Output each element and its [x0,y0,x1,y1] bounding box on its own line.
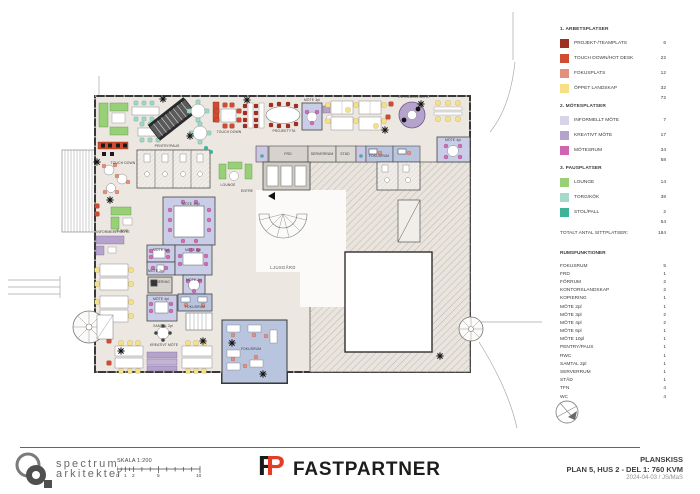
scale-label: SKALA 1:200 [117,458,205,464]
legend-item: STOL/PALL2 [560,205,666,220]
legend-item-label: KREATIVT MÖTE [574,133,654,138]
legend-item-count: 38 [654,195,666,200]
room-function-row: MÖTE 10pl1 [560,336,666,344]
legend-item-count: 17 [654,133,666,138]
plan-room-label: SERVERRUM [311,152,334,156]
scale-num-2: 2 [132,474,135,479]
legend-total-value: 184 [654,231,666,236]
room-function-count: 2 [656,280,666,285]
room-functions: RUMSFUNKTIONER FOKUSRUM5FRD1FÖRRUM2KONTO… [560,251,666,401]
room-function-count: 1 [656,337,666,342]
room-function-label: RWC [560,354,656,359]
legend-panel: 1. ARBETSPLATSERPROJEKT-/TEAMPLATS6TOUCH… [560,27,666,401]
legend-item-label: TORG/KÖK [574,195,654,200]
legend-item-label: INFORMELLT MÖTE [574,118,654,123]
elevator-block [263,162,310,190]
doc-type: PLANSKISS [566,455,683,465]
legend-item-count: 22 [654,56,666,61]
legend-section-title: 2. MÖTESPLATSER [560,104,666,113]
legend-swatch [560,84,569,93]
wc-core-left [137,150,210,188]
legend-sections: 1. ARBETSPLATSERPROJEKT-/TEAMPLATS6TOUCH… [560,27,666,228]
room-function-label: FRD [560,272,656,277]
legend-item-label: LOUNGE [574,180,654,185]
legend-item-count: 32 [654,86,666,91]
drawing-sheet: PENTRY/PAUSTOUCH DOWNTOUCH DOWNLOUNGELOU… [0,0,700,494]
fastpartner-logo-p: P [266,450,285,481]
legend-subtotal: 72 [560,96,666,104]
legend-section-title: 1. ARBETSPLATSER [560,27,666,36]
plan-room-label: MÖTE 6pl [185,248,201,252]
legend-item-count: 6 [654,41,666,46]
legend-item-label: PROJEKT-/TEAMPLATS [574,41,654,46]
legend-swatch [560,208,569,217]
wc-core-right [377,162,420,190]
room-function-count: 1 [656,370,666,375]
plan-room-label: MÖTE 4pl [445,138,461,142]
legend-item-count: 2 [654,210,666,215]
plan-room-label: LOUNGE [221,183,237,187]
interior-stair [186,313,212,330]
plan-room-label: PENTRY/PAUS [155,144,180,148]
legend-section-title: 3. PAUSPLATSER [560,166,666,175]
architect-brand: spectrum arkitekter [14,450,123,490]
north-symbol [556,401,578,423]
legend-item: PROJEKT-/TEAMPLATS6 [560,36,666,51]
room-function-count: 4 [656,395,666,400]
legend-item: KREATIVT MÖTE17 [560,128,666,143]
plan-room-label: TOUCH DOWN [217,130,242,134]
plan-room-label: ENTRE [241,189,254,193]
client-name: FASTPARTNER [293,459,441,481]
spiral-stair-left [73,311,113,343]
legend-swatch [560,146,569,155]
room-function-count: 1 [656,272,666,277]
room-function-count: 1 [656,378,666,383]
plan-room-label: TOUCH DOWN [111,161,136,165]
legend-swatch [560,54,569,63]
exterior-stair [62,150,95,232]
plan-room-label: INFORMELL MÖTE [398,95,430,99]
room-function-label: STÄD [560,378,656,383]
room-function-count: 2 [656,321,666,326]
room-function-row: WC4 [560,393,666,401]
plan-room-label: KOPIERING [150,280,170,284]
room-function-count: 1 [656,345,666,350]
room-function-row: MÖTE 3pl2 [560,311,666,319]
room-functions-rows: FOKUSRUM5FRD1FÖRRUM2KONTORSLANDSKAP2KOPI… [560,262,666,401]
legend-item: LOUNGE14 [560,175,666,190]
legend-item-label: STOL/PALL [574,210,654,215]
plan-room-label: FOKUSRUM [241,347,261,351]
legend-swatch [560,39,569,48]
brand-name-line2: arkitekter [56,469,123,479]
legend-total: TOTALT ANTAL SITTPLATSER: 184 [560,231,666,236]
room-function-row: MÖTE 2pl1 [560,303,666,311]
room-function-row: STÄD1 [560,377,666,385]
legend-swatch [560,178,569,187]
legend-section: 2. MÖTESPLATSERINFORMELLT MÖTE7KREATIVT … [560,104,666,166]
scale-indicator: SKALA 1:200 0 1 2 5 10 [117,458,205,475]
plan-room-label: MÖTE 4pl [153,297,169,301]
room-function-label: MÖTE 3pl [560,313,656,318]
room-function-label: MÖTE 4pl [560,321,656,326]
room-function-label: MÖTE 2pl [560,305,656,310]
room-function-row: SAMTAL 2pl1 [560,360,666,368]
spiral-stair-right [459,317,483,341]
plan-room-label: PROJEKTYTA [273,129,297,133]
plan-room-label: FOKUSRUM [185,305,205,309]
room-function-row: SERVERRUM1 [560,368,666,376]
plan-room-label: MÖTE 10pl [182,202,200,206]
scale-bar [117,466,205,475]
plan-room-label: MÖTE 4pl [153,248,169,252]
room-function-count: 1 [656,354,666,359]
title-block: PLANSKISS PLAN 5, HUS 2 - DEL 1: 760 KVM… [566,455,683,482]
plan-room-label: FRD [284,152,292,156]
room-function-count: 2 [656,313,666,318]
room-function-label: WC [560,395,656,400]
fastpartner-logo: FP [258,452,285,480]
legend-item: MÖTESRUM34 [560,143,666,158]
room-function-row: KONTORSLANDSKAP2 [560,287,666,295]
kreativ-mote-seating [147,352,177,371]
room-function-count: 1 [656,305,666,310]
plan-room-label: KREATIVT MÖTE [150,343,179,347]
core-rooms [256,146,420,162]
legend-item: INFORMELLT MÖTE7 [560,113,666,128]
plan-room-label: FOKUSRUM [369,154,389,158]
plan-room-label: LJUSGÅRD [270,265,296,270]
legend-swatch [560,69,569,78]
room-function-row: PENTRY/PAUS1 [560,344,666,352]
spectrum-arkitekter-logo [14,450,52,490]
plan-room-label: INFORMELLT MÖTE [96,230,130,234]
room-function-label: MÖTE 6pl [560,329,656,334]
room-function-row: RWC1 [560,352,666,360]
legend-item: ÖPPET LANDSKAP32 [560,81,666,96]
plan-room-label: MÖTE 3pl [186,278,202,282]
scale-num-5: 5 [157,474,160,479]
legend-section: 3. PAUSPLATSERLOUNGE14TORG/KÖK38STOL/PAL… [560,166,666,228]
scale-num-1: 1 [124,474,127,479]
date-signature: 2024-04-03 / JS/MaS [566,474,683,482]
room-function-label: KONTORSLANDSKAP [560,288,656,293]
room-function-count: 4 [656,386,666,391]
fokusrum-annex [222,320,287,383]
room-function-label: FÖRRUM [560,280,656,285]
footer-divider-line [20,447,640,448]
room-function-label: PENTRY/PAUS [560,345,656,350]
room-function-row: MÖTE 6pl1 [560,328,666,336]
legend-item-label: ÖPPET LANDSKAP [574,86,654,91]
scale-num-10: 10 [196,474,201,479]
room-function-label: SAMTAL 2pl [560,362,656,367]
room-function-row: FÖRRUM2 [560,278,666,286]
legend-swatch [560,131,569,140]
legend-item-count: 34 [654,148,666,153]
legend-total-label: TOTALT ANTAL SITTPLATSER: [560,231,654,236]
room-functions-title: RUMSFUNKTIONER [560,251,666,262]
legend-section: 1. ARBETSPLATSERPROJEKT-/TEAMPLATS6TOUCH… [560,27,666,104]
legend-item-count: 14 [654,180,666,185]
legend-item-label: MÖTESRUM [574,148,654,153]
legend-swatch [560,193,569,202]
room-function-label: SERVERRUM [560,370,656,375]
legend-item: TORG/KÖK38 [560,190,666,205]
legend-subtotal: 58 [560,158,666,166]
room-function-label: MÖTE 10pl [560,337,656,342]
room-function-label: FOKUSRUM [560,264,656,269]
plan-room-label: MÖTE 2pl [148,269,164,273]
room-function-row: FOKUSRUM5 [560,262,666,270]
legend-item-label: FOKUSPLATS [574,71,654,76]
room-function-count: 5 [656,264,666,269]
legend-item-label: TOUCH DOWN/HOT DESK [574,56,654,61]
room-function-label: KOPIERING [560,296,656,301]
scale-num-0: 0 [116,474,119,479]
plan-room-label: MÖTE 3pl [304,98,320,102]
legend-subtotal: 54 [560,220,666,228]
room-function-row: KOPIERING1 [560,295,666,303]
room-function-row: FRD1 [560,270,666,278]
legend-item-count: 7 [654,118,666,123]
plan-room-label: SAMTAL 2pl [153,324,173,328]
plan-room-label: STÄD [340,152,350,156]
room-function-count: 1 [656,296,666,301]
legend-swatch [560,116,569,125]
legend-item: FOKUSPLATS12 [560,66,666,81]
room-function-row: TFN4 [560,385,666,393]
legend-item-count: 12 [654,71,666,76]
room-function-count: 2 [656,288,666,293]
plan-title: PLAN 5, HUS 2 - DEL 1: 760 KVM [566,465,683,475]
legend-item: TOUCH DOWN/HOT DESK22 [560,51,666,66]
room-function-count: 1 [656,362,666,367]
room-function-row: MÖTE 4pl2 [560,319,666,327]
room-function-count: 1 [656,329,666,334]
room-function-label: TFN [560,386,656,391]
